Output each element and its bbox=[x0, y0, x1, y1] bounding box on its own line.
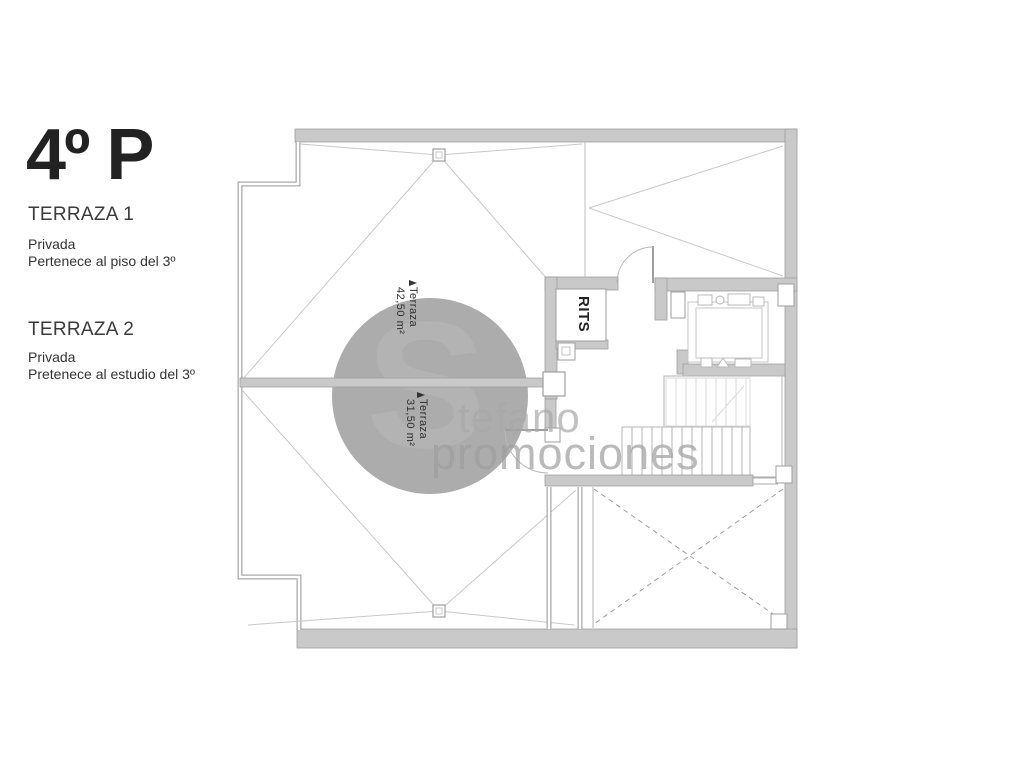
wall-stub bbox=[776, 466, 792, 483]
wall-stub bbox=[771, 614, 787, 629]
floor-plan: RITS bbox=[0, 0, 1024, 768]
terraza-1-line-1: Privada bbox=[28, 236, 75, 252]
level-mark-2 bbox=[417, 392, 425, 398]
lift-machine bbox=[688, 302, 768, 362]
level-mark-1 bbox=[409, 280, 417, 286]
wall-stub bbox=[543, 372, 565, 396]
elevator-door bbox=[671, 292, 685, 318]
void-cross bbox=[594, 489, 783, 624]
roof-drain-top bbox=[433, 149, 445, 161]
svg-text:Terraza: Terraza bbox=[407, 287, 419, 328]
wall-top bbox=[295, 129, 797, 142]
watermark-word: promociones bbox=[431, 428, 700, 480]
vent-box bbox=[558, 343, 575, 360]
void-room bbox=[549, 487, 787, 629]
roof-drain-bottom bbox=[433, 605, 445, 617]
terraza-2-line-1: Privada bbox=[28, 349, 75, 365]
wall-right bbox=[785, 129, 797, 648]
lift-machine-parts bbox=[698, 294, 764, 367]
svg-text:31,50 m²: 31,50 m² bbox=[404, 399, 416, 446]
terraza-1-roof bbox=[242, 144, 582, 380]
area-labels: Terraza 42,50 m² Terraza 31,50 m² bbox=[394, 280, 429, 446]
upper-right-terraza bbox=[585, 142, 783, 278]
terraza-1-heading: TERRAZA 1 bbox=[28, 204, 134, 226]
terraza-2-line-2: Pretenece al estudio del 3º bbox=[28, 366, 195, 382]
svg-text:42,50 m²: 42,50 m² bbox=[394, 287, 406, 334]
wall-bottom bbox=[297, 629, 797, 648]
elevator-room bbox=[655, 278, 797, 376]
page-title: 4º P bbox=[26, 114, 152, 196]
terraza-1-line-2: Pertenece al piso del 3º bbox=[28, 253, 176, 269]
svg-text:Terraza: Terraza bbox=[417, 399, 429, 440]
rits-label: RITS bbox=[575, 296, 592, 332]
terraza-2-heading: TERRAZA 2 bbox=[28, 319, 134, 341]
door-upper bbox=[617, 246, 653, 283]
pillar-stub bbox=[778, 284, 794, 306]
terraza-1-label: Terraza 42,50 m² bbox=[394, 287, 419, 334]
terraza-2-label: Terraza 31,50 m² bbox=[404, 399, 429, 446]
terraza-divider-wall bbox=[240, 378, 546, 387]
